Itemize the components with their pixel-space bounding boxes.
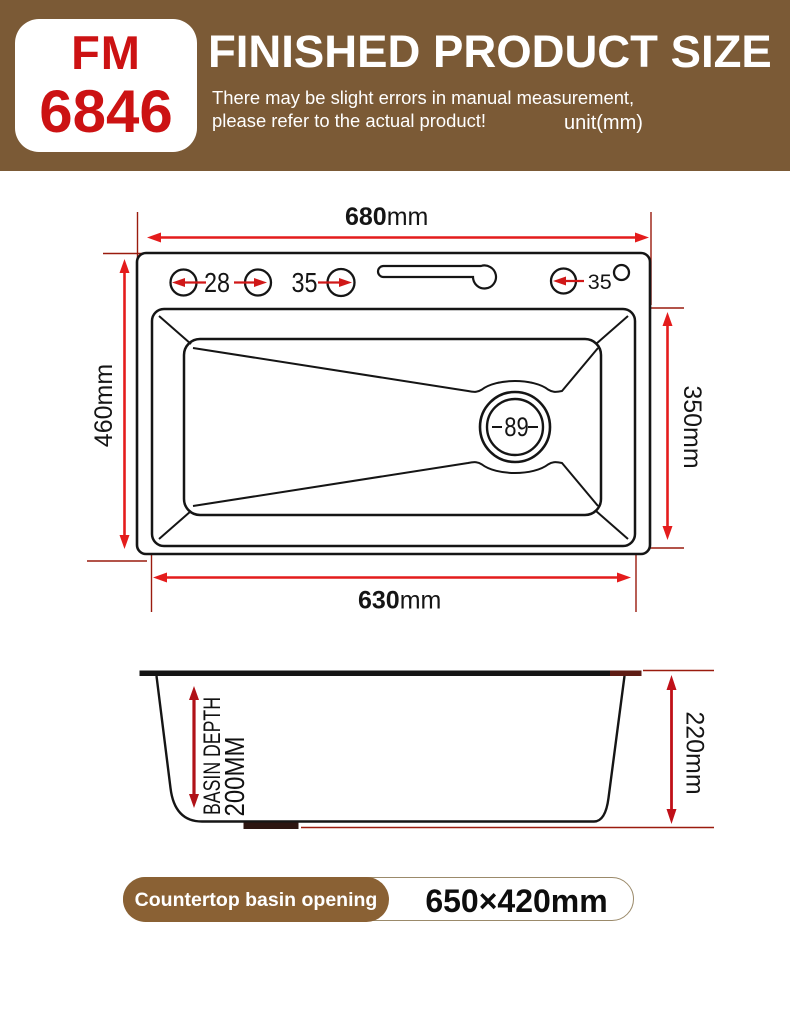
svg-text:35: 35 — [588, 270, 612, 294]
svg-text:680mm: 680mm — [345, 203, 428, 231]
svg-text:28: 28 — [204, 267, 230, 298]
svg-text:350mm: 350mm — [678, 385, 706, 468]
svg-text:35: 35 — [292, 267, 318, 298]
svg-text:89: 89 — [504, 412, 529, 442]
svg-text:220mm: 220mm — [681, 711, 709, 794]
svg-text:200MM: 200MM — [219, 737, 250, 817]
svg-text:460mm: 460mm — [90, 364, 118, 447]
svg-text:630mm: 630mm — [358, 587, 441, 615]
